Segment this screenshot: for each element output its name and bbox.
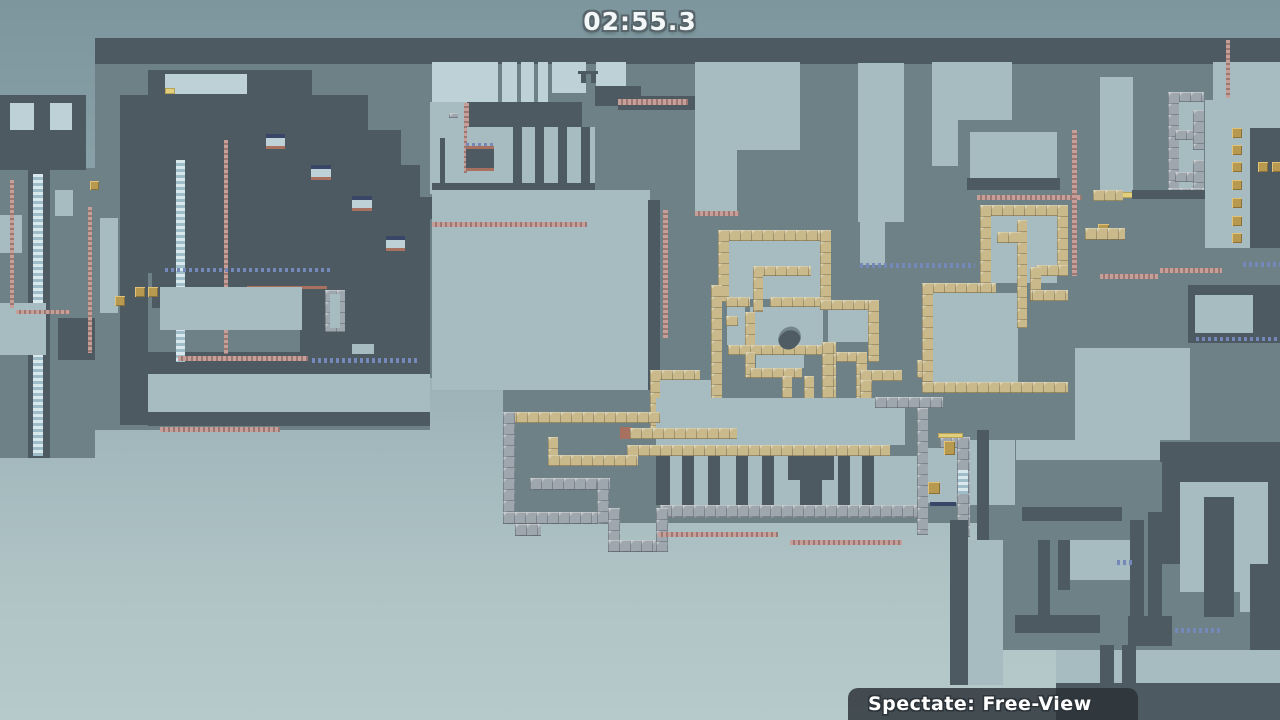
map-tile-blue-dotted-line [1196,337,1280,341]
map-tile-open-corridor [1075,348,1190,440]
map-tile-tan-brick [627,445,890,456]
map-tile-open-corridor [1100,77,1133,197]
map-tile-open-corridor [330,294,340,328]
map-tile-tan-brick [1057,205,1068,267]
map-tile-dark-wall [535,127,544,183]
map-tile-gold-block [135,287,145,297]
map-tile-open-corridor [1213,62,1280,102]
map-tile-stone-brick [1193,110,1204,150]
map-tile-light-room [266,138,285,146]
map-tile-dark-wall [967,178,1060,190]
map-tile-gold-block [944,441,955,455]
map-tile-freeze-chain-horizontal [16,310,70,314]
map-tile-dark-wall [1038,540,1050,615]
map-tile-dark-wall [1122,645,1136,685]
map-tile-tan-brick [1032,290,1068,301]
map-tile-open-corridor [55,190,73,216]
map-tile-gold-block [1272,162,1280,172]
map-tile-open-corridor [860,222,885,265]
map-tile-blue-dotted-line [1243,262,1280,267]
map-tile-open-corridor [828,310,868,342]
map-tile-gold-block [1232,180,1242,190]
map-tile-tan-brick [726,316,738,326]
map-tile-gold-block [148,287,158,297]
map-tile-dark-wall [95,38,1280,64]
map-tile-dark-wall [950,520,968,685]
map-tile-dark-wall [432,183,595,190]
map-tile-dark-wall [862,456,874,505]
map-tile-yellow-strip [165,88,175,94]
map-tile-tan-brick [548,455,638,466]
map-tile-light-room [165,74,247,94]
map-tile-freeze-chain-horizontal [1160,268,1222,273]
map-tile-open-corridor [695,150,737,216]
map-tile-open-corridor [858,63,904,222]
map-tile-freeze-chain-vertical [1072,130,1077,276]
map-tile-dark-wall [977,430,989,540]
map-tile-dark-wall [1100,645,1114,685]
map-tile-stone-brick [875,397,943,408]
map-tile-open-corridor [432,190,650,390]
map-tile-freeze-chain-horizontal [695,211,739,216]
map-tile-dark-wall [682,456,694,505]
map-tile-open-corridor [352,344,374,354]
map-tile-dark-wall [1160,442,1280,462]
map-tile-dark-wall [466,149,494,168]
game-viewport[interactable]: 02:55.3 Spectate: Free-View [0,0,1280,720]
map-tile-stone-brick [503,412,515,524]
map-tile-dark-wall [838,456,850,505]
spectate-banner: Spectate: Free-View [848,688,1138,720]
map-tile-light-room [538,62,548,102]
map-tile-stone-brick [503,512,611,524]
map-tile-gold-block [1232,128,1242,138]
map-tile-dark-wall [581,71,586,83]
map-tile-tan-brick [728,345,828,355]
map-tile-red-brown-line [352,208,372,211]
map-tile-tan-brick [980,205,991,287]
map-tile-light-room [502,62,517,102]
race-timer-label: 02:55.3 [583,7,696,36]
map-tile-open-corridor [970,132,1057,178]
map-tile-yellow-strip [938,433,963,438]
map-tile-dark-wall [1058,540,1070,590]
map-tile-dark-wall [558,127,567,183]
map-tile-blue-dotted-line [1117,560,1134,565]
map-tile-freeze-chain-vertical [1226,40,1230,98]
map-tile-blue-dotted-line [312,358,420,363]
map-tile-gold-block [1232,233,1242,243]
map-tile-stone-brick [660,505,920,518]
map-tile-tan-brick [980,205,1068,216]
map-tile-gold-block [115,296,125,306]
map-tile-dark-wall [788,456,834,480]
map-tile-open-corridor [160,287,302,330]
map-tile-freeze-chain-horizontal [432,222,587,227]
map-tile-freeze-chain-horizontal [790,540,902,545]
map-tile-dark-wall [148,412,430,426]
map-tile-dark-wall [656,456,670,505]
map-tile-dark-wall [1130,520,1144,620]
map-tile-dark-wall [513,127,522,183]
map-tile-gold-block [1258,162,1268,172]
map-tile-gold-block [1232,198,1242,208]
map-tile-open-corridor [860,404,905,445]
map-tile-freeze-chain-horizontal [160,427,280,432]
map-tile-freeze-chain-horizontal [658,532,778,537]
map-tile-dark-wall [736,456,748,505]
map-tile-stone-brick [1168,92,1179,198]
map-tile-light-room [596,62,626,86]
map-tile-dark-wall [148,165,420,205]
map-tile-blue-dotted-line [860,263,975,268]
map-tile-red-brown-line [311,177,331,180]
map-tile-light-room [352,200,372,208]
map-tile-dark-wall [800,480,822,505]
map-tile-dark-wall [440,138,445,183]
map-tile-stone-brick [656,508,668,552]
map-tile-navy-line [930,502,956,506]
map-tile-tan-brick [630,428,737,439]
map-tile-dark-wall [1132,190,1205,199]
map-tile-tan-brick [718,230,830,241]
map-tile-gold-block [1232,162,1242,172]
map-tile-open-corridor [1195,295,1253,333]
map-tile-open-corridor [932,62,1012,120]
map-tile-freeze-chain-vertical [663,210,668,338]
map-tile-freeze-chain-vertical [10,180,14,308]
map-tile-dark-wall [1204,497,1234,617]
map-tile-dark-wall [1148,512,1162,617]
map-tile-light-room [311,169,331,177]
map-tile-red-brown-line [266,146,285,149]
map-tile-stone-brick [449,113,458,118]
map-tile-freeze-chain-horizontal [1100,274,1158,279]
map-tile-tan-brick [753,266,763,312]
map-tile-dark-wall [1128,616,1172,646]
map-tile-blue-dotted-line [1175,628,1220,633]
map-tile-tan-brick [726,297,750,307]
map-tile-dark-wall [581,127,590,183]
map-tile-stone-brick [1175,172,1193,182]
map-tile-red-brown-line [386,248,405,251]
map-tile-tan-brick [505,412,660,423]
map-tile-open-corridor [756,355,804,368]
map-tile-dark-wall [1022,507,1122,521]
map-tile-tan-brick [922,382,1068,393]
map-tile-stone-brick [917,408,928,535]
map-tile-light-room [432,62,498,102]
map-tile-light-room [386,240,405,248]
map-tile-tan-brick [997,232,1019,243]
map-tile-open-corridor [1056,650,1280,683]
map-tile-tan-brick [770,297,822,307]
map-tile-tan-brick [1093,190,1123,201]
map-tile-open-corridor [695,62,800,150]
map-tile-gold-block [1232,216,1242,226]
map-tile-freeze-chain-horizontal [977,195,1082,200]
map-tile-light-room [521,62,534,102]
map-tile-ladder-column [958,470,968,494]
map-tile-tan-brick [1085,228,1125,240]
map-tile-stone-brick [1175,130,1193,140]
map-tile-open-corridor [763,276,820,298]
map-tile-dark-wall [467,102,582,127]
map-tile-open-corridor [968,540,1003,685]
map-tile-open-corridor [933,293,1018,382]
map-tile-tan-brick [750,368,802,378]
map-tile-ladder-column [176,160,185,362]
map-tile-light-room [10,103,34,130]
map-tile-tan-brick [980,283,996,293]
map-tile-open-corridor [1016,440,1160,460]
map-tile-dark-wall [1015,615,1100,633]
map-tile-gold-block [90,181,99,190]
map-tile-blue-dotted-line [165,268,330,272]
race-timer: 02:55.3 [0,7,1280,36]
map-tile-freeze-chain-horizontal [178,356,308,361]
map-tile-dark-wall [648,200,660,390]
spectate-banner-label: Spectate: Free-View [868,693,1092,715]
map-tile-freeze-chain-vertical [88,207,92,353]
map-tile-stone-brick [515,524,541,536]
map-tile-tan-brick [922,283,933,382]
map-tile-light-room [50,103,72,130]
map-tile-dark-wall [708,456,720,505]
map-tile-dark-wall [591,71,596,83]
map-tile-open-corridor [932,120,958,166]
map-tile-dark-wall [762,456,774,505]
map-tile-freeze-chain-horizontal [618,99,688,105]
map-tile-open-corridor [148,374,430,414]
map-tile-tan-brick [868,300,879,362]
map-tile-gold-block [928,482,940,494]
map-tile-open-corridor [928,448,957,503]
map-tile-red-brown-line [466,168,494,171]
map-tile-gold-block [1232,145,1242,155]
map-tile-dark-wall [1250,128,1280,248]
map-tile-dark-wall [120,95,148,425]
map-tile-tan-brick [782,376,792,398]
map-tile-dark-wall [143,95,368,133]
